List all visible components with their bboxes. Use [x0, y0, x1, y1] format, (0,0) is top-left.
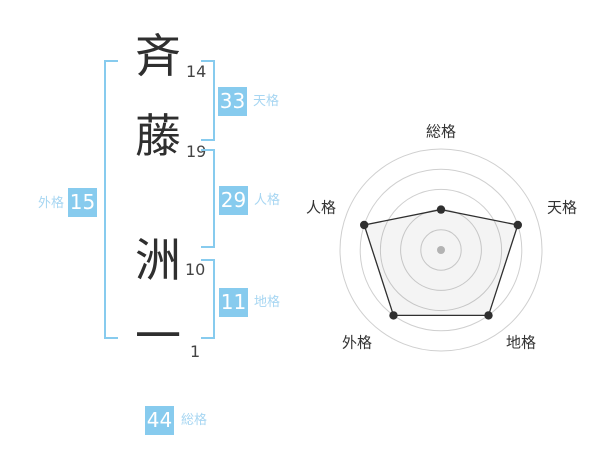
radar-center-dot	[437, 246, 445, 254]
axis-label-gaikaku: 外格	[342, 334, 372, 352]
axis-label-jinkaku: 人格	[306, 199, 336, 217]
radar-data-polygon	[364, 210, 518, 316]
name-fortune-page: 斉 藤 洲 一 14 19 10 1 33 天格 29 人格 11 地格 外格 …	[0, 0, 600, 470]
radar-chart: 総格 天格 地格 外格 人格	[0, 0, 600, 470]
axis-label-tenkaku: 天格	[547, 199, 577, 217]
axis-label-soukaku: 総格	[426, 123, 456, 141]
axis-label-chikaku: 地格	[506, 334, 536, 352]
